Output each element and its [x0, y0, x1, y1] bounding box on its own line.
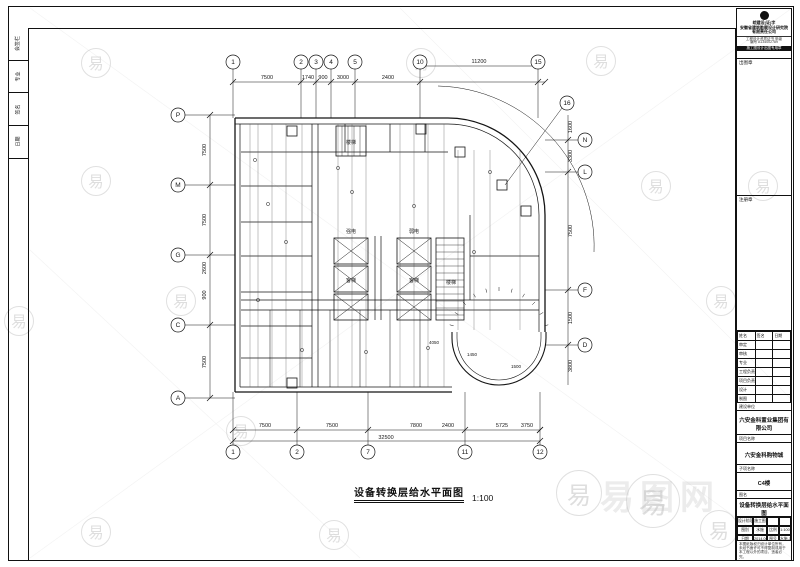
- drawing-title-row: 设备转换层给水平面图 1:100: [354, 484, 493, 503]
- sig-cell: 审定: [738, 341, 756, 350]
- section-value: 六安金科置业集团有限公司: [737, 411, 791, 435]
- signature-table: 姓名签名日期审定审核专业工程负责人项目负责人设计制图: [737, 331, 791, 403]
- sig-cell: [773, 377, 791, 386]
- titleblock-section: 图名 设备转换层给水平面图: [737, 491, 791, 517]
- info-cell: 设计阶段: [737, 517, 753, 526]
- sig-cell: 专业: [738, 359, 756, 368]
- cad-linework: 制图: [738, 395, 791, 404]
- design-institute-stamp: 皖建设(证)字 安徽省建筑勘察设计研究院 有限责任公司 工程设计资质证书 甲级 …: [737, 9, 791, 59]
- drawing-title: 设备转换层给水平面图: [354, 484, 464, 503]
- strip-cell: 日期: [8, 126, 28, 159]
- sig-cell: [755, 377, 773, 386]
- info-cell: [767, 517, 779, 526]
- cad-linework: 设计: [738, 386, 791, 395]
- institute-logo-icon: [760, 11, 769, 20]
- section-label: 建设单位: [737, 403, 791, 411]
- seal-box-2: 注册章: [737, 196, 791, 331]
- strip-cell: 会签栏: [8, 28, 28, 61]
- cad-linework: 姓名签名日期审定审核专业工程负责人项目负责人设计制图: [737, 331, 791, 403]
- info-cell: 比例: [767, 526, 779, 535]
- sig-cell: 项目负责人: [738, 377, 756, 386]
- sig-cell: [755, 386, 773, 395]
- section-value: 六安金科购物城: [737, 443, 791, 465]
- sig-cell: 工程负责人: [738, 368, 756, 377]
- copyright-note: 本图纸版权归设计单位所有，未经书面许可不得复制或用于本工程以外的项目，违者必究。: [737, 541, 791, 560]
- sig-header: 姓名: [738, 332, 756, 341]
- strip-cell-label: 专业: [14, 72, 21, 82]
- sig-cell: 审核: [738, 350, 756, 359]
- sig-header: 签名: [755, 332, 773, 341]
- cad-linework: 姓名签名日期审定审核专业工程负责人项目负责人设计制图: [738, 332, 791, 404]
- sig-cell: [755, 350, 773, 359]
- stamp-line: 有限责任公司: [737, 30, 791, 35]
- stamp-bar: 施工图设计出图专用章: [737, 46, 791, 51]
- stamp-cert-line: 编号 A134002789: [737, 41, 791, 45]
- sig-cell: [755, 395, 773, 404]
- info-cell: 水施: [753, 526, 767, 535]
- drawing-sheet: { "sheet": { "title": "设备转换层给水平面图", "sca…: [0, 0, 800, 567]
- cad-linework: 设计阶段施工图图别水施比例1:100日期2014.06图号水施-10: [737, 517, 791, 541]
- cad-linework: 姓名签名日期: [738, 332, 791, 341]
- info-cell: 图别: [737, 526, 753, 535]
- strip-cell: 专业: [8, 61, 28, 94]
- drawing-info-table: 设计阶段施工图图别水施比例1:100日期2014.06图号水施-10: [737, 517, 791, 541]
- cad-linework: 审定: [738, 341, 791, 350]
- cad-linework: 专业: [738, 359, 791, 368]
- seal-box-1-label: 出图章: [737, 59, 791, 67]
- sig-cell: [773, 359, 791, 368]
- drawing-scale: 1:100: [472, 493, 493, 503]
- section-label: 图名: [737, 491, 791, 499]
- section-label: 子项名称: [737, 465, 791, 473]
- seal-box-2-label: 注册章: [737, 196, 791, 204]
- cad-linework: 项目负责人: [738, 377, 791, 386]
- titleblock-section: 建设单位 六安金科置业集团有限公司: [737, 403, 791, 435]
- sig-cell: [755, 341, 773, 350]
- sheet-inner-frame: [28, 28, 736, 561]
- titleblock-section: 项目名称 六安金科购物城: [737, 435, 791, 465]
- sig-cell: [773, 395, 791, 404]
- sig-header: 日期: [773, 332, 791, 341]
- strip-cell: 签名: [8, 93, 28, 126]
- sig-cell: [755, 368, 773, 377]
- sig-cell: 制图: [738, 395, 756, 404]
- sig-cell: [773, 386, 791, 395]
- sig-cell: [773, 368, 791, 377]
- strip-cell-label: 日期: [14, 137, 21, 147]
- strip-cell-label: 会签栏: [14, 36, 21, 51]
- seal-box-1: 出图章: [737, 59, 791, 196]
- sig-cell: [773, 341, 791, 350]
- sig-cell: [773, 350, 791, 359]
- cad-linework: 审核: [738, 350, 791, 359]
- sig-cell: [755, 359, 773, 368]
- info-cell: 1:100: [779, 526, 791, 535]
- sig-cell: 设计: [738, 386, 756, 395]
- cad-linework: 工程负责人: [738, 368, 791, 377]
- info-cell: 施工图: [753, 517, 767, 526]
- strip-cell-label: 签名: [14, 104, 21, 114]
- title-block: 皖建设(证)字 安徽省建筑勘察设计研究院 有限责任公司 工程设计资质证书 甲级 …: [736, 8, 792, 561]
- info-cell: [779, 517, 791, 526]
- titleblock-section: 子项名称 C4楼: [737, 465, 791, 491]
- signature-strip: 会签栏专业签名日期: [8, 28, 28, 159]
- section-value: 设备转换层给水平面图: [737, 499, 791, 517]
- section-label: 项目名称: [737, 435, 791, 443]
- section-value: C4楼: [737, 473, 791, 491]
